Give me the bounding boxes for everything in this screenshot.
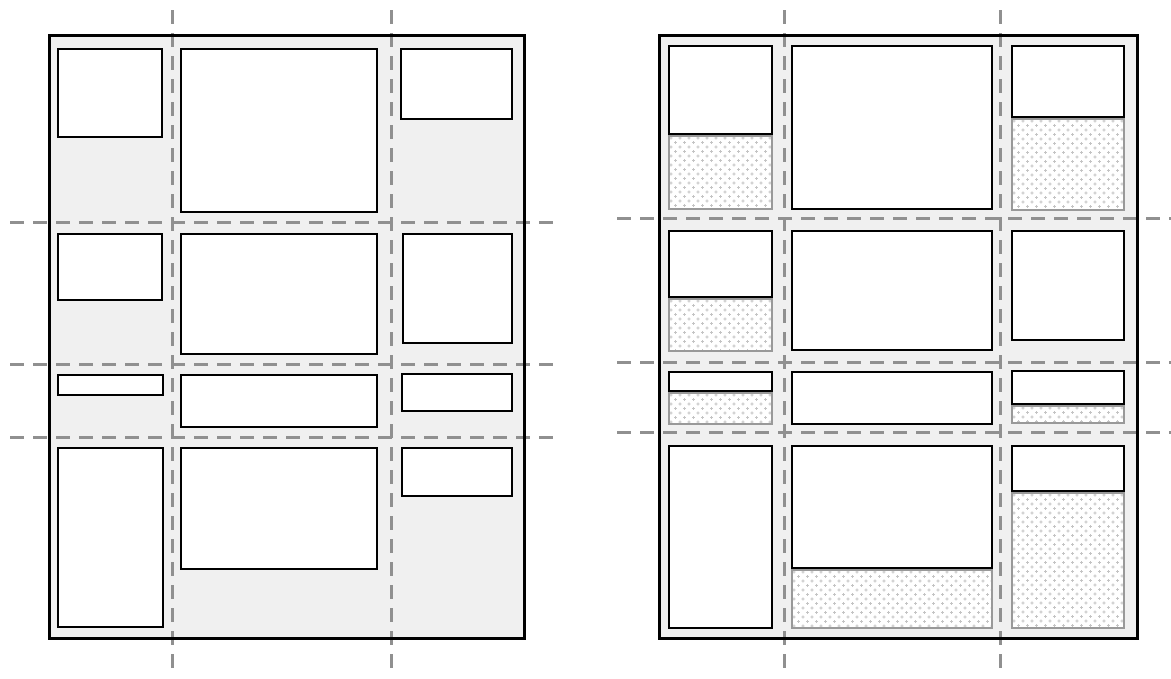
grid-item bbox=[1011, 45, 1125, 118]
grid-item bbox=[180, 48, 378, 213]
slack-area bbox=[668, 135, 773, 210]
grid-item bbox=[400, 48, 513, 120]
grid-item bbox=[57, 233, 163, 301]
grid-item bbox=[1011, 230, 1125, 341]
grid-item bbox=[791, 371, 993, 425]
grid-item bbox=[180, 233, 378, 355]
grid-item bbox=[1011, 370, 1125, 405]
grid-item bbox=[1011, 445, 1125, 492]
slack-area bbox=[1011, 405, 1125, 424]
grid-item bbox=[402, 233, 513, 344]
grid-item bbox=[57, 48, 163, 138]
grid-item bbox=[791, 445, 993, 569]
grid-item bbox=[668, 445, 773, 629]
grid-item bbox=[668, 45, 773, 135]
grid-comparison-figure bbox=[0, 0, 1171, 679]
grid-item bbox=[791, 45, 993, 210]
grid-item bbox=[180, 374, 378, 428]
grid-item bbox=[57, 374, 164, 396]
slack-area bbox=[668, 298, 773, 352]
grid-item bbox=[180, 447, 378, 570]
grid-item bbox=[57, 447, 164, 628]
grid-item bbox=[401, 447, 513, 497]
slack-area bbox=[1011, 492, 1125, 629]
slack-area bbox=[1011, 118, 1125, 211]
grid-item bbox=[668, 230, 773, 298]
slack-area bbox=[668, 392, 773, 425]
grid-item bbox=[668, 371, 773, 392]
grid-item bbox=[401, 373, 513, 412]
slack-area bbox=[791, 569, 993, 629]
grid-item bbox=[791, 230, 993, 351]
